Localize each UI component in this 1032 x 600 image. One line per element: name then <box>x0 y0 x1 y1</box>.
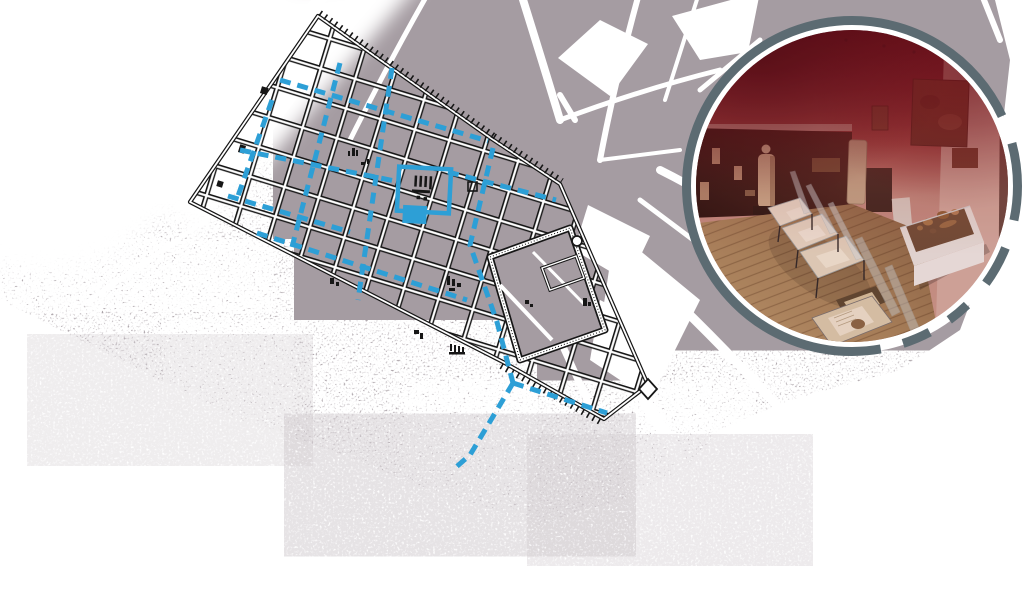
figure-svg <box>0 0 1032 600</box>
citadel-round-tower <box>572 236 582 246</box>
forum-blue-block <box>402 205 427 224</box>
figure-canvas <box>0 0 1032 600</box>
